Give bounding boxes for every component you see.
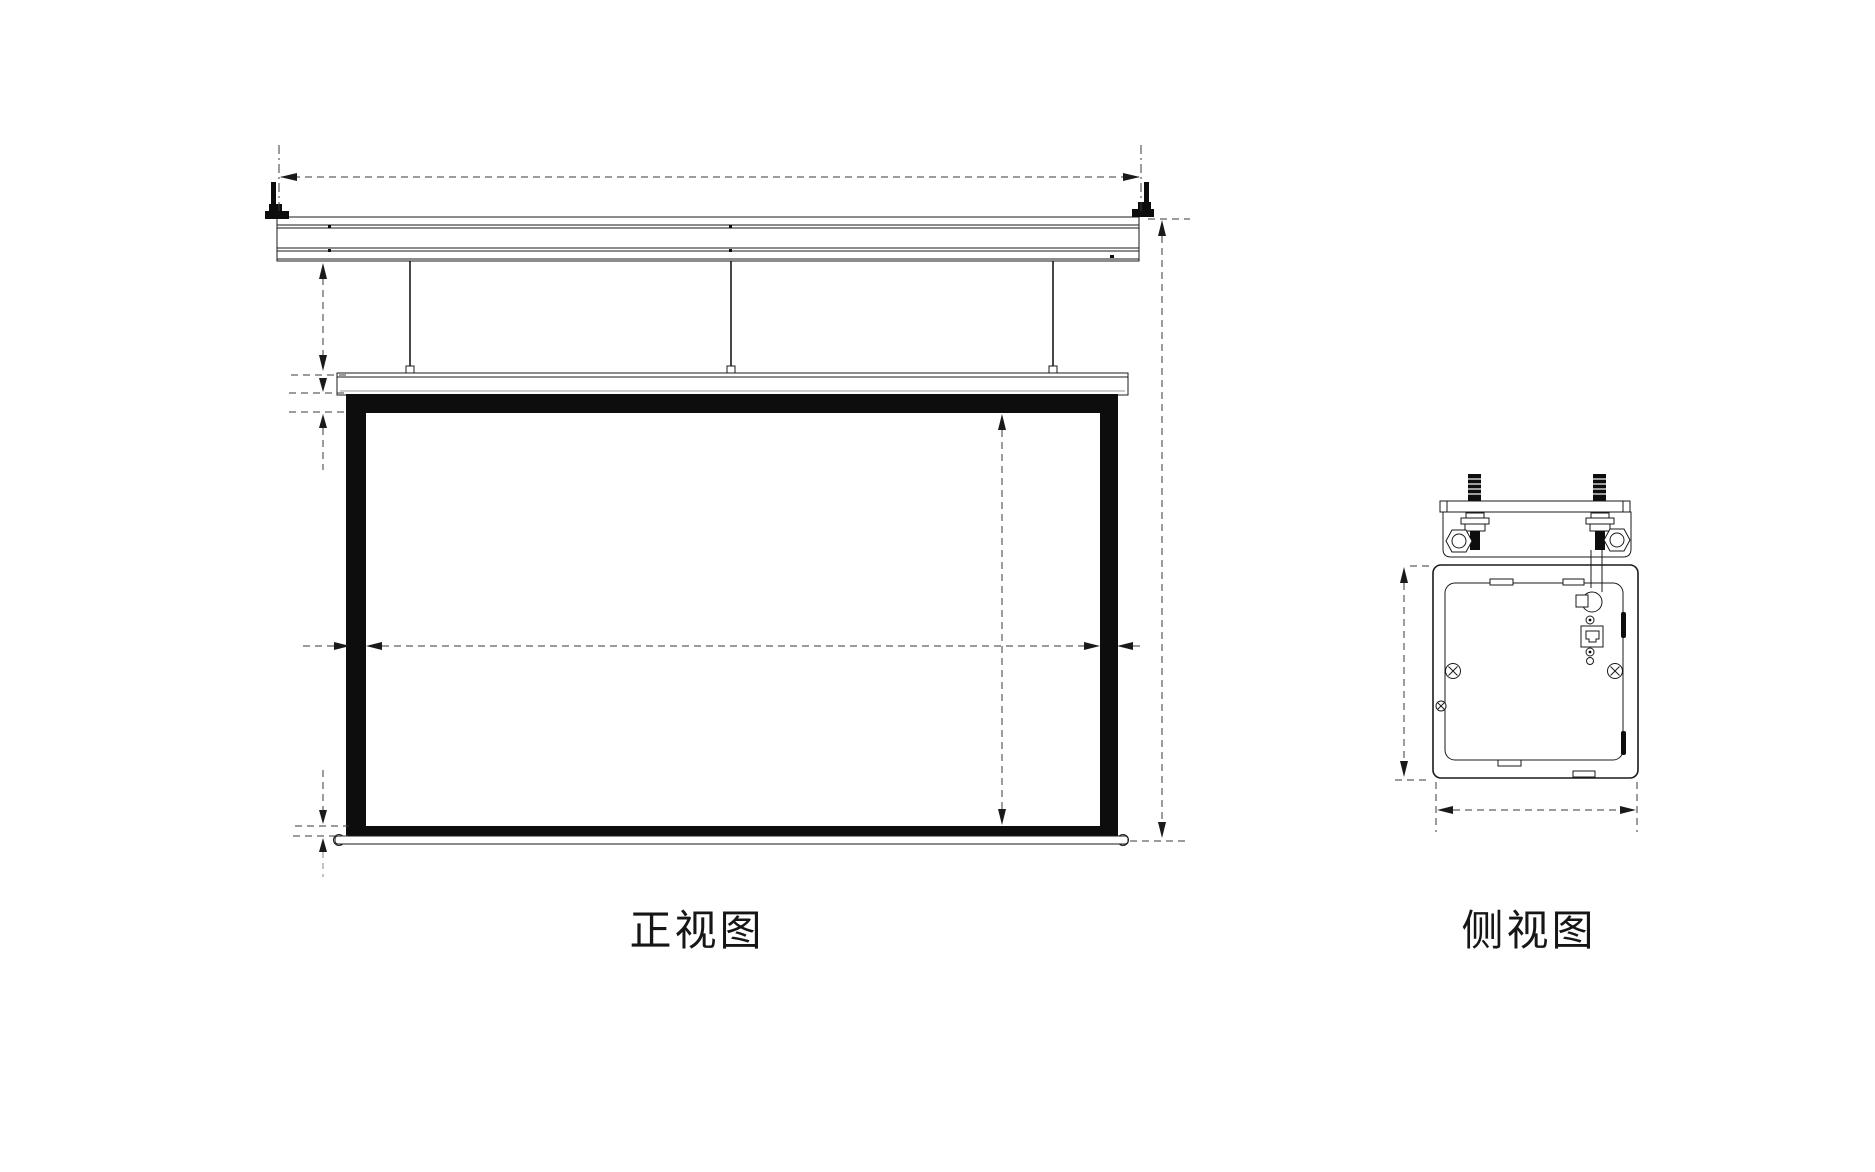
arrowhead-up: [319, 263, 327, 279]
track-fastener-dot: [328, 249, 331, 252]
arrowhead-down: [319, 810, 327, 824]
hex-bolt-circle: [1610, 533, 1624, 547]
hook-clamp: [1576, 595, 1588, 607]
mounting-plate: [1440, 501, 1630, 512]
nut-top: [1591, 513, 1609, 518]
hanger-rods: [406, 261, 1057, 373]
nut: [1465, 524, 1485, 531]
arrowhead-right: [1123, 173, 1140, 181]
arrowhead-up: [319, 838, 327, 852]
edge-slot: [1621, 731, 1626, 755]
mounting-bracket: [1440, 501, 1631, 557]
technical-drawing-page: 正视图 侧视图: [0, 0, 1875, 1172]
arrowhead-down: [1400, 761, 1408, 777]
screw-dot: [1589, 619, 1592, 622]
bottom-slat: [334, 835, 1129, 846]
screen-viewing-area: [366, 413, 1100, 826]
arrowhead-left: [280, 173, 297, 181]
washer: [1586, 518, 1614, 524]
hex-bolt-circle: [1452, 534, 1466, 548]
track-fastener-dot: [729, 249, 732, 252]
bracket-clamp: [1138, 202, 1151, 209]
front-view: [265, 145, 1190, 877]
track-body: [277, 217, 1139, 261]
nut-top: [1466, 513, 1484, 518]
track-fastener-dot: [1110, 255, 1114, 258]
ceiling-bracket-left: [265, 182, 289, 219]
track-fastener-dot: [328, 225, 331, 228]
dim-box-depth: [1436, 782, 1637, 832]
bracket-clamp: [269, 204, 282, 211]
arrowhead-left: [1437, 806, 1453, 814]
track-fastener-dot: [729, 225, 732, 228]
arrowhead-up: [1400, 567, 1408, 583]
drawing-svg: 正视图 侧视图: [0, 0, 1875, 1172]
screen-casing: [337, 373, 1128, 395]
panel-tab: [1490, 579, 1513, 585]
panel-tab: [1573, 771, 1595, 777]
screw: [1587, 658, 1594, 665]
bracket-foot: [265, 211, 289, 219]
socket-outline: [1581, 626, 1603, 647]
arrowhead-left: [1117, 642, 1133, 650]
rod-lower: [1595, 531, 1605, 550]
arrowhead-down: [319, 378, 327, 392]
side-view: [1395, 474, 1638, 832]
panel-tab: [1563, 579, 1584, 585]
dim-left-stack: [289, 263, 351, 877]
ceiling-track: [277, 217, 1139, 261]
threaded-rods: [1468, 474, 1606, 502]
bracket-foot: [1132, 209, 1154, 217]
arrowhead-down: [319, 355, 327, 371]
ceiling-bracket-right: [1132, 182, 1154, 217]
arrowhead-up: [319, 414, 327, 428]
nut: [1590, 524, 1610, 531]
hanger-rod-foot: [1049, 366, 1057, 373]
threaded-rod: [1468, 474, 1481, 502]
threaded-rod: [1593, 474, 1606, 502]
side-view-label: 侧视图: [1461, 907, 1596, 954]
hanger-rod-foot: [406, 366, 414, 373]
arrowhead-down: [1158, 822, 1166, 838]
dim-overall-width: [279, 145, 1141, 213]
panel-tab: [1498, 760, 1521, 766]
dim-overall-height: [1130, 219, 1190, 841]
arrowhead-up: [1158, 220, 1166, 236]
washer: [1461, 518, 1489, 524]
front-view-label: 正视图: [629, 907, 764, 954]
arrowhead-right: [1620, 806, 1636, 814]
edge-slot: [1621, 612, 1626, 638]
dim-box-height: [1395, 566, 1434, 780]
casing-body: [337, 373, 1128, 395]
hanger-rod-foot: [727, 366, 735, 373]
slat-bar: [335, 836, 1128, 844]
screw-dot: [1589, 651, 1592, 654]
